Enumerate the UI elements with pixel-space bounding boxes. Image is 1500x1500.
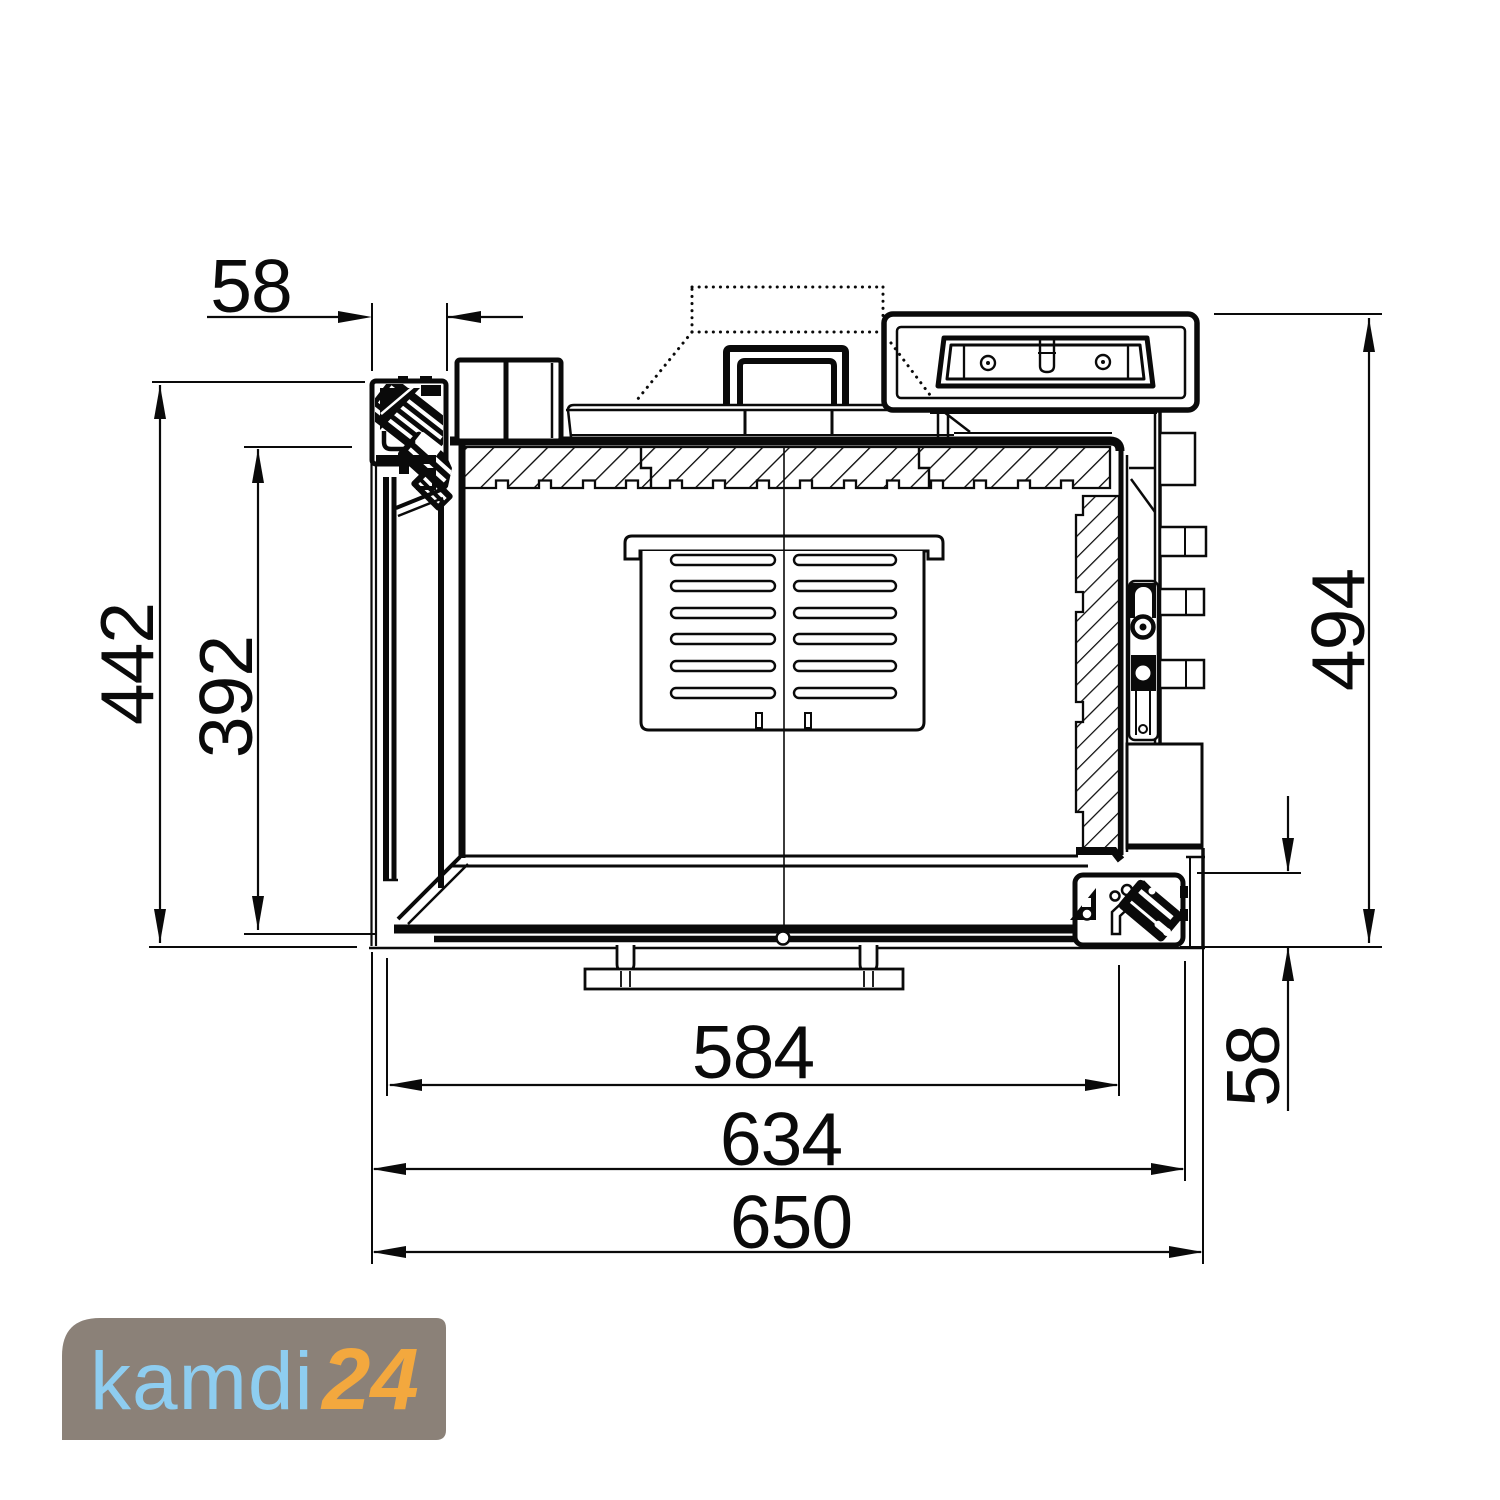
svg-text:392: 392 [184, 636, 268, 758]
svg-text:24: 24 [320, 1331, 419, 1428]
svg-text:634: 634 [720, 1097, 842, 1181]
svg-text:584: 584 [692, 1010, 814, 1094]
svg-text:650: 650 [730, 1180, 852, 1264]
svg-text:442: 442 [85, 603, 169, 725]
svg-text:kamdi: kamdi [90, 1336, 314, 1427]
svg-text:494: 494 [1296, 569, 1380, 691]
svg-text:58: 58 [210, 244, 291, 328]
svg-text:58: 58 [1211, 1025, 1295, 1106]
